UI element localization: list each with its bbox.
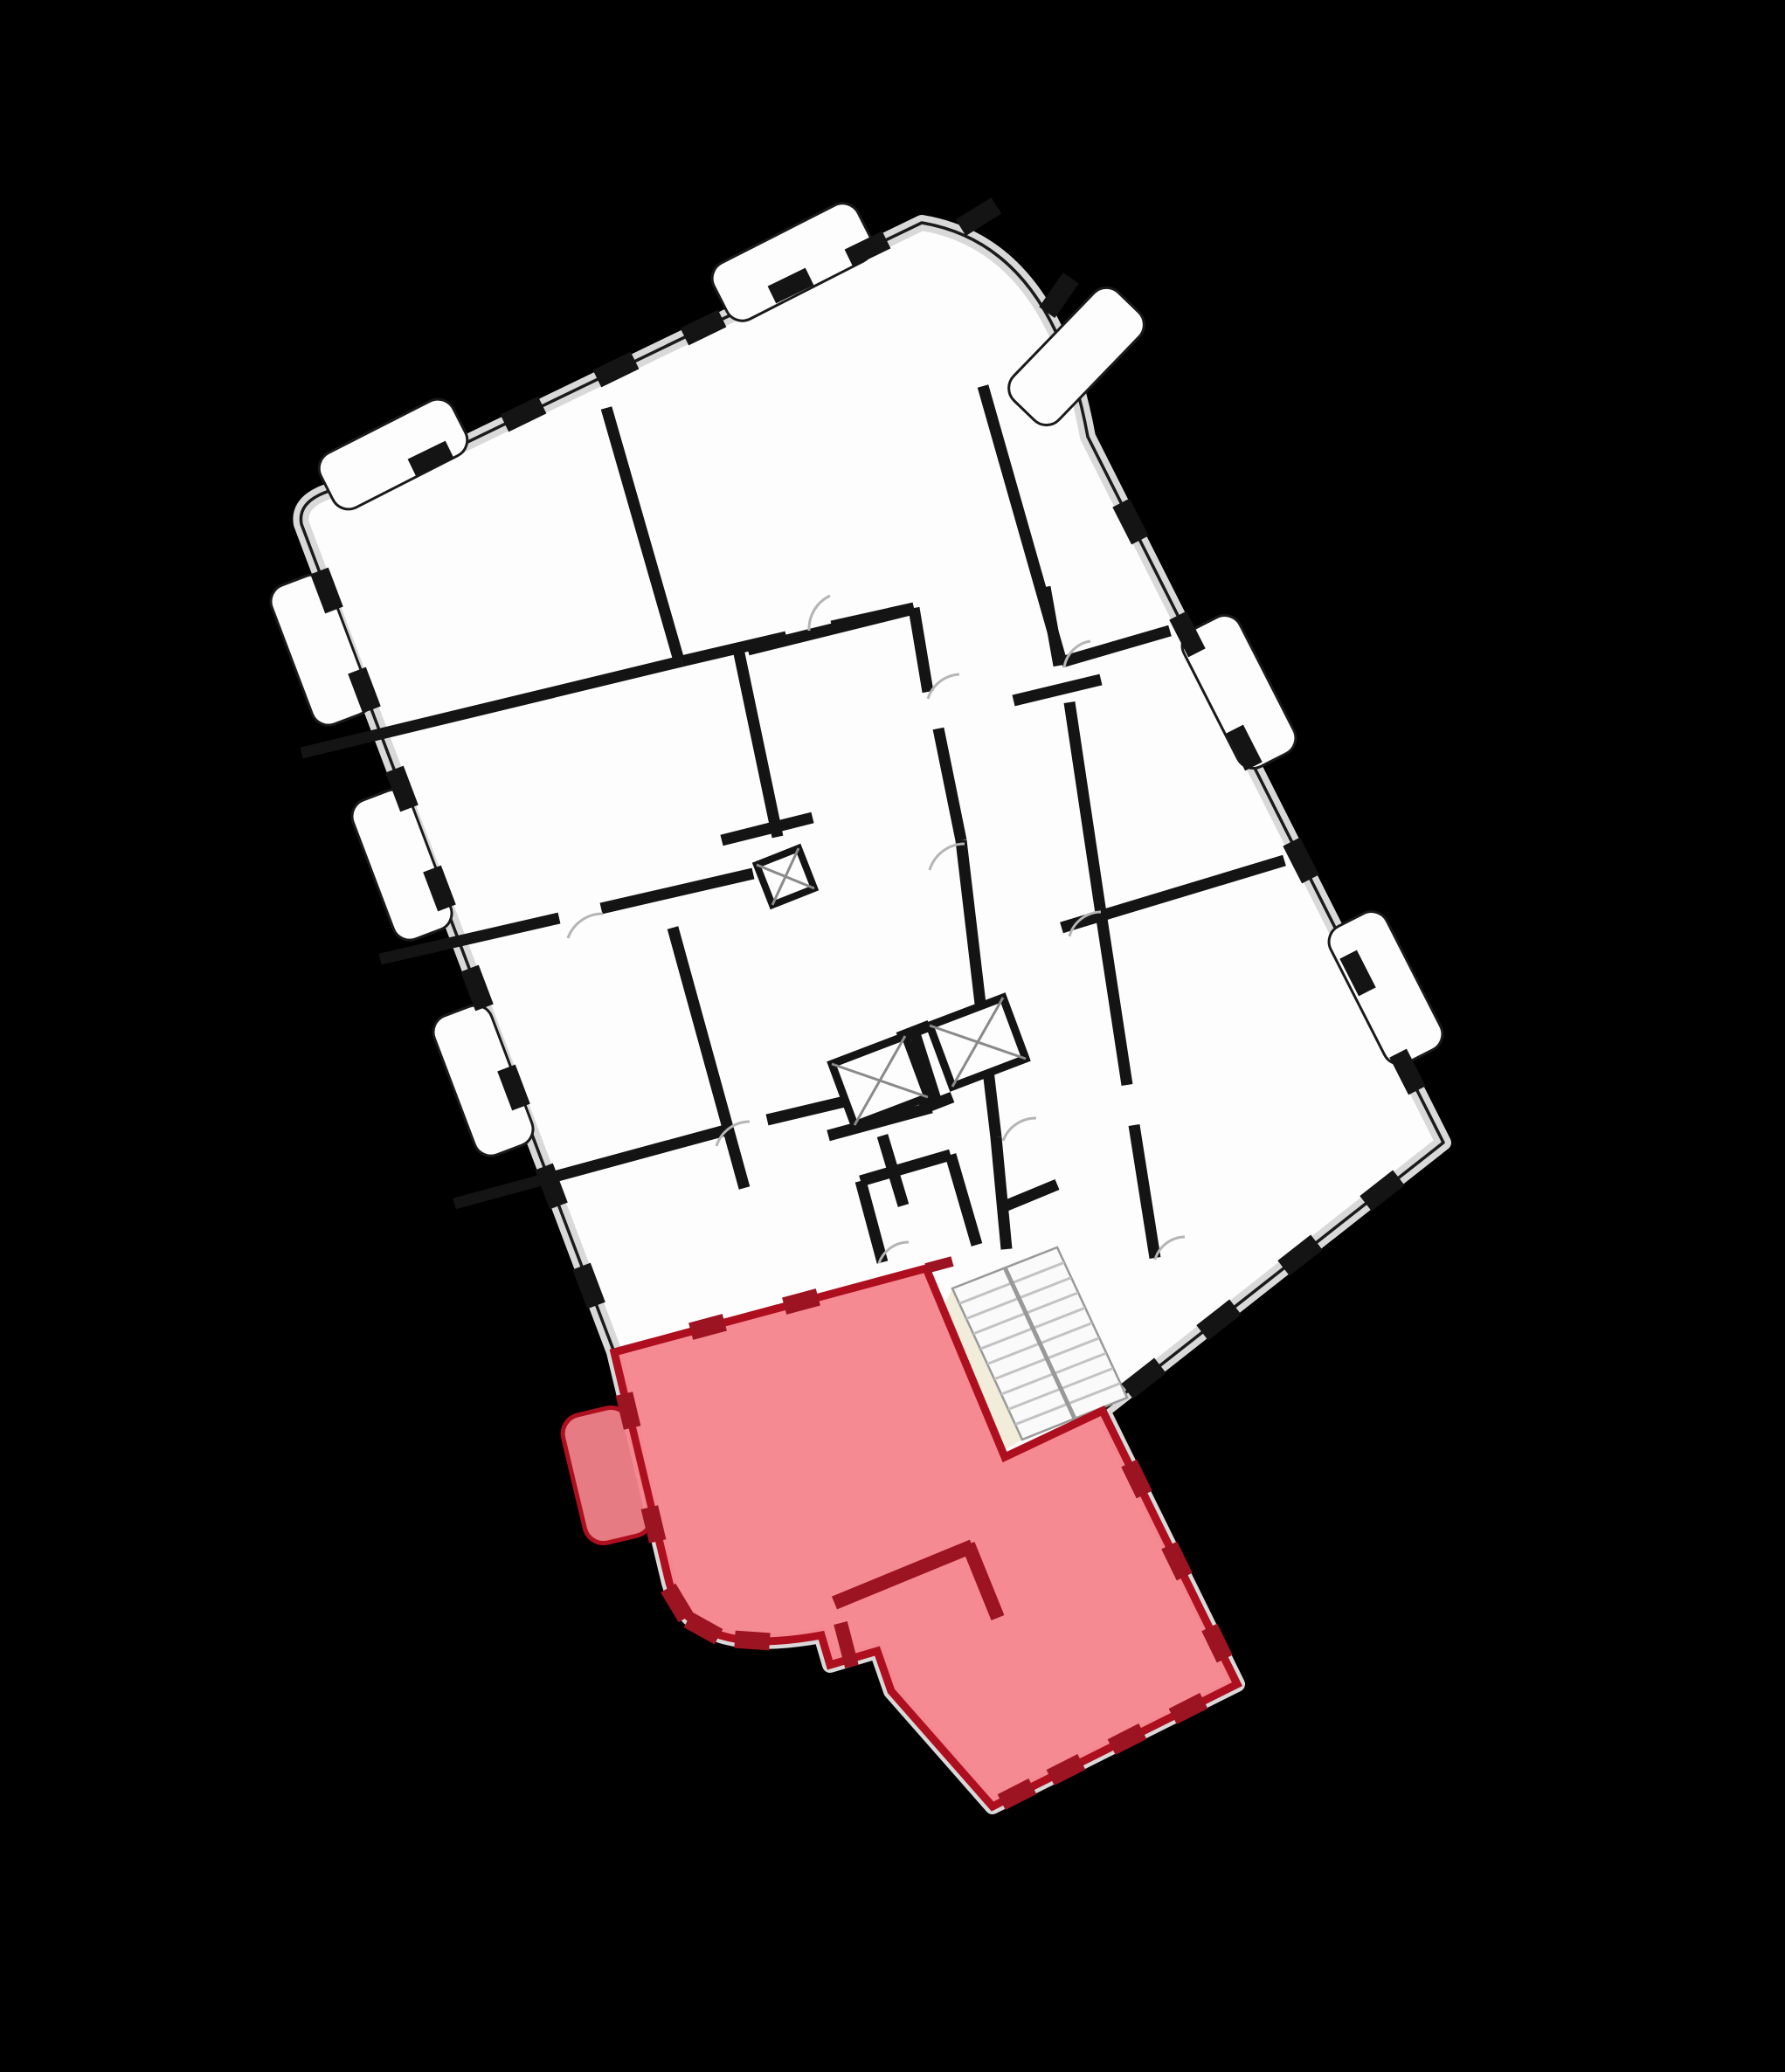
floorplan-stage xyxy=(0,0,1785,2072)
unit-pier xyxy=(734,1631,770,1651)
floor-plan-canvas xyxy=(0,0,1785,2072)
